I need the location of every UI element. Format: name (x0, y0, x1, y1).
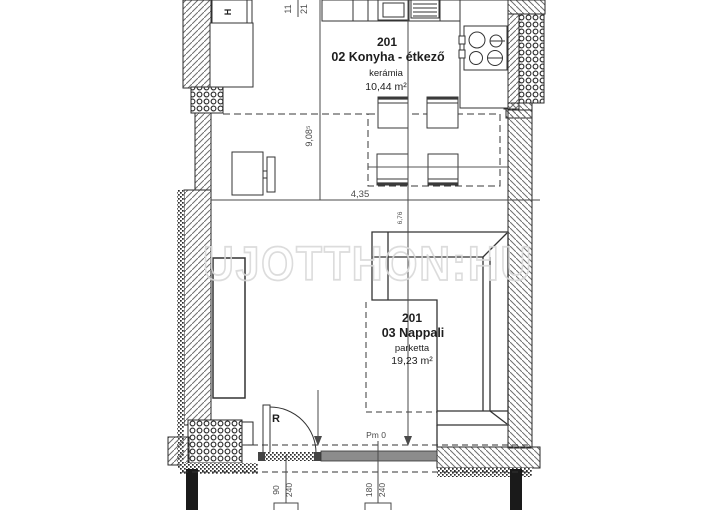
door-jamb-post (242, 422, 253, 445)
sink-basin (383, 3, 404, 17)
wall-left-lower (184, 190, 211, 425)
kitchen-number: 201 (377, 35, 397, 49)
watermark-text: UJOTTHON:HU (203, 238, 533, 291)
dim-window-height: 240 (377, 483, 387, 497)
wall-left-upper (183, 0, 211, 88)
wall-checker-bottom-left (188, 420, 242, 463)
dim-horizontal: 4,35 (351, 189, 370, 200)
wall-checker-top-left (191, 87, 223, 113)
dim-fraction-den: 21 (299, 4, 309, 14)
door-label: R (272, 413, 280, 425)
desk-chair (267, 157, 275, 192)
kitchen-floor: kerámia (369, 68, 404, 79)
living-floor: parketta (395, 343, 430, 354)
dim-vertical: 9,08⁵ (304, 125, 314, 147)
door-leaf (263, 405, 270, 453)
stove-coil-2 (459, 50, 465, 58)
window-sill (321, 451, 437, 461)
dim-window-width: 180 (364, 483, 374, 497)
chair-top-left (378, 97, 408, 128)
post-left (186, 469, 198, 510)
dim-box-door (274, 503, 298, 510)
living-number: 201 (402, 311, 422, 325)
door-threshold (265, 452, 314, 461)
living-area: 19,23 m² (391, 355, 433, 367)
dim-door-width: 90 (271, 485, 281, 495)
desk-group (232, 152, 275, 195)
wall-top-right-band (504, 0, 545, 14)
living-name: 03 Nappali (382, 326, 445, 340)
dim-fraction-num: 11 (283, 4, 293, 13)
chair-top-right (427, 97, 458, 128)
wall-bottom-right (437, 447, 540, 468)
dim-door-height: 240 (284, 483, 294, 497)
dim-box-window (365, 503, 391, 510)
floorplan-canvas: 201 02 Konyha - étkező kerámia 10,44 m² … (0, 0, 720, 510)
wall-left-mid (195, 113, 211, 190)
drainer (411, 0, 439, 18)
level-mark: Pm 0 (366, 430, 386, 440)
wall-checker-top-right (519, 14, 544, 103)
kitchen-counter-left (210, 23, 253, 87)
dim-small-right: 6,76 (397, 211, 404, 224)
door-jamb-left (258, 452, 265, 461)
chair-bottom-right (428, 154, 458, 185)
kitchen-area: 10,44 m² (365, 81, 407, 93)
dining-chairs (377, 97, 458, 185)
chair-bottom-left (377, 154, 408, 185)
wall-hatch-bottom-left (168, 437, 189, 465)
stove (459, 26, 507, 70)
desk (232, 152, 263, 195)
stove-coil-1 (459, 36, 465, 44)
fridge-label: H (223, 9, 233, 16)
post-right (510, 469, 522, 510)
floorplan-svg: 201 02 Konyha - étkező kerámia 10,44 m² … (0, 0, 720, 510)
door-jamb-right (314, 452, 321, 461)
wall-dotted-strip-left (177, 190, 184, 468)
kitchen-name: 02 Konyha - étkező (331, 50, 445, 64)
